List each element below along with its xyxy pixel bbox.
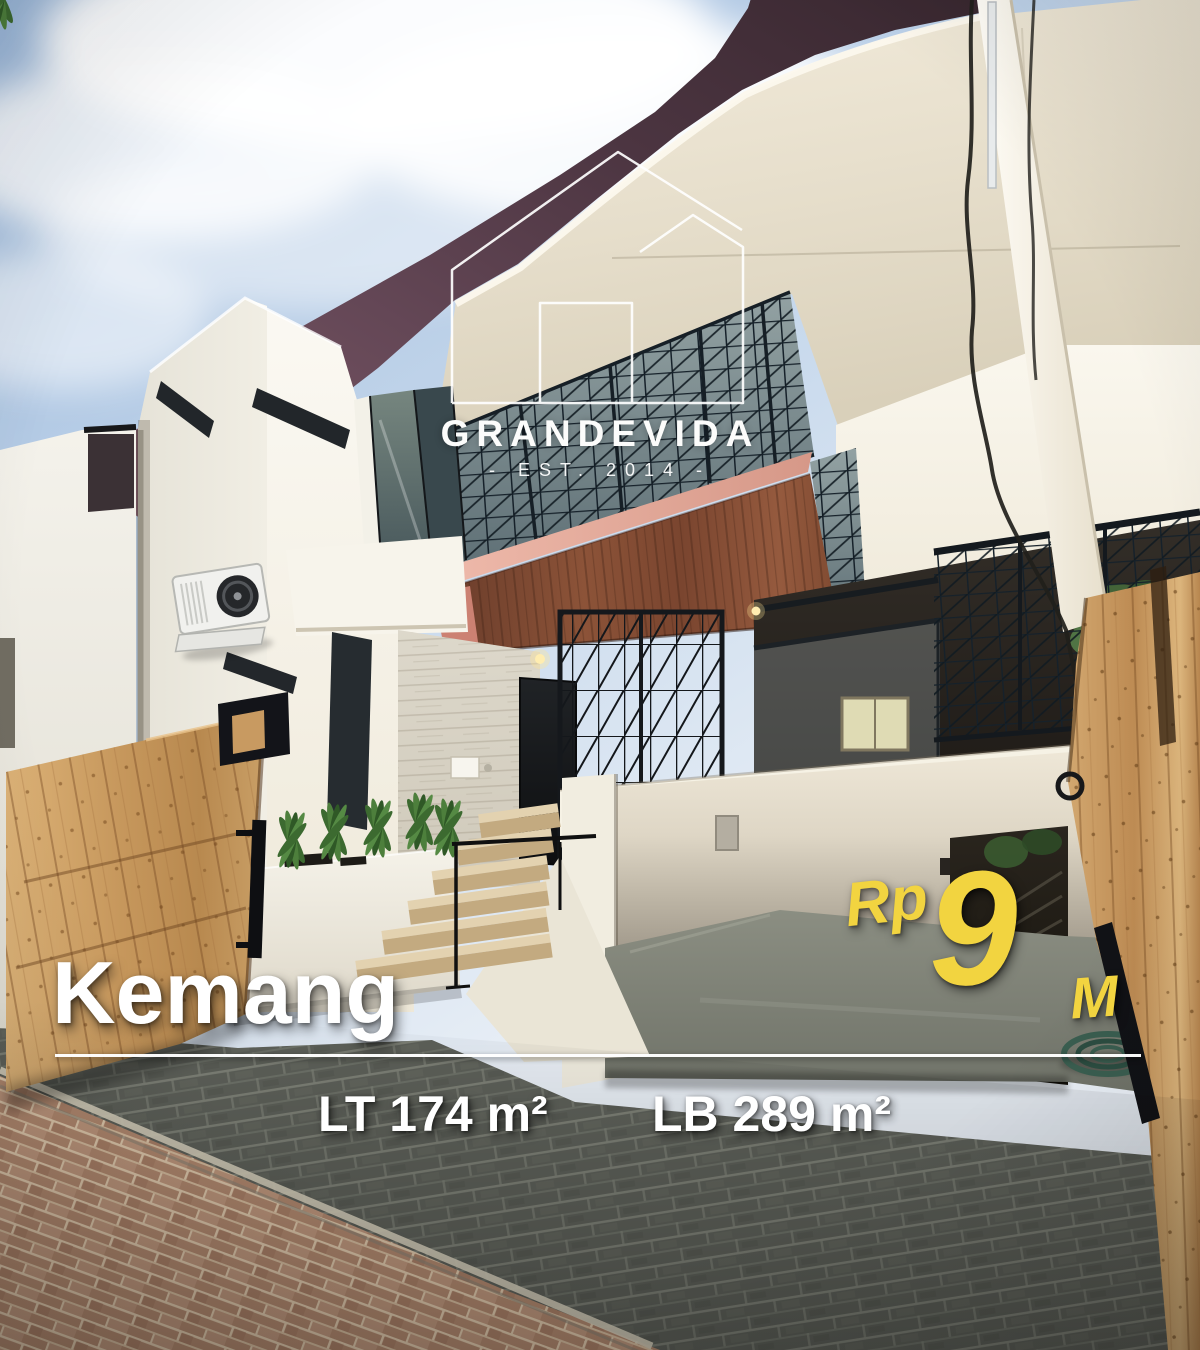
price-unit: M — [1068, 962, 1121, 1032]
location-title: Kemang — [52, 942, 399, 1044]
listing-image: GRANDEVIDA - EST. 2014 - Kemang LT 174 m… — [0, 0, 1200, 1350]
land-area-text: LT 174 m² — [318, 1085, 548, 1143]
brand-est-line: - EST. 2014 - — [300, 460, 900, 481]
brand-name: GRANDEVIDA — [300, 413, 900, 455]
house-outline-icon — [440, 145, 760, 415]
divider-line — [55, 1054, 1141, 1057]
price-amount: 9 — [925, 850, 1020, 1007]
price-currency: Rp — [842, 862, 932, 941]
building-area-text: LB 289 m² — [652, 1085, 891, 1143]
